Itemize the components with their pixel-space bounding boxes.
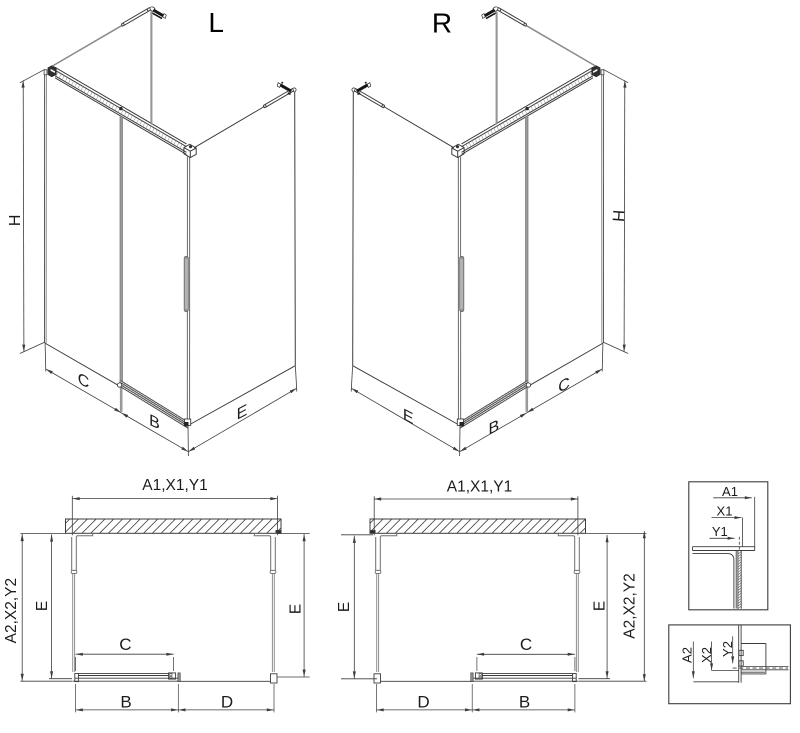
svg-text:A1: A1: [722, 484, 738, 499]
svg-text:Y1: Y1: [712, 524, 728, 539]
svg-text:H: H: [608, 209, 627, 222]
svg-text:L: L: [208, 7, 224, 38]
svg-text:A1,X1,Y1: A1,X1,Y1: [447, 479, 513, 496]
svg-text:D: D: [417, 693, 429, 712]
svg-text:A2: A2: [679, 647, 694, 663]
svg-text:D: D: [221, 693, 233, 712]
svg-text:A2,X2,Y2: A2,X2,Y2: [622, 573, 639, 639]
svg-text:A1,X1,Y1: A1,X1,Y1: [142, 477, 208, 494]
svg-text:E: E: [34, 601, 51, 611]
svg-text:E: E: [592, 601, 609, 611]
svg-text:B: B: [519, 693, 530, 712]
svg-text:R: R: [432, 8, 452, 39]
svg-text:H: H: [7, 215, 24, 227]
svg-text:X1: X1: [717, 504, 733, 519]
svg-text:A2,X2,Y2: A2,X2,Y2: [3, 578, 20, 644]
svg-text:C: C: [119, 635, 131, 654]
svg-text:E: E: [288, 604, 305, 614]
svg-text:B: B: [120, 693, 131, 712]
svg-text:E: E: [336, 602, 353, 612]
svg-text:C: C: [520, 635, 532, 654]
